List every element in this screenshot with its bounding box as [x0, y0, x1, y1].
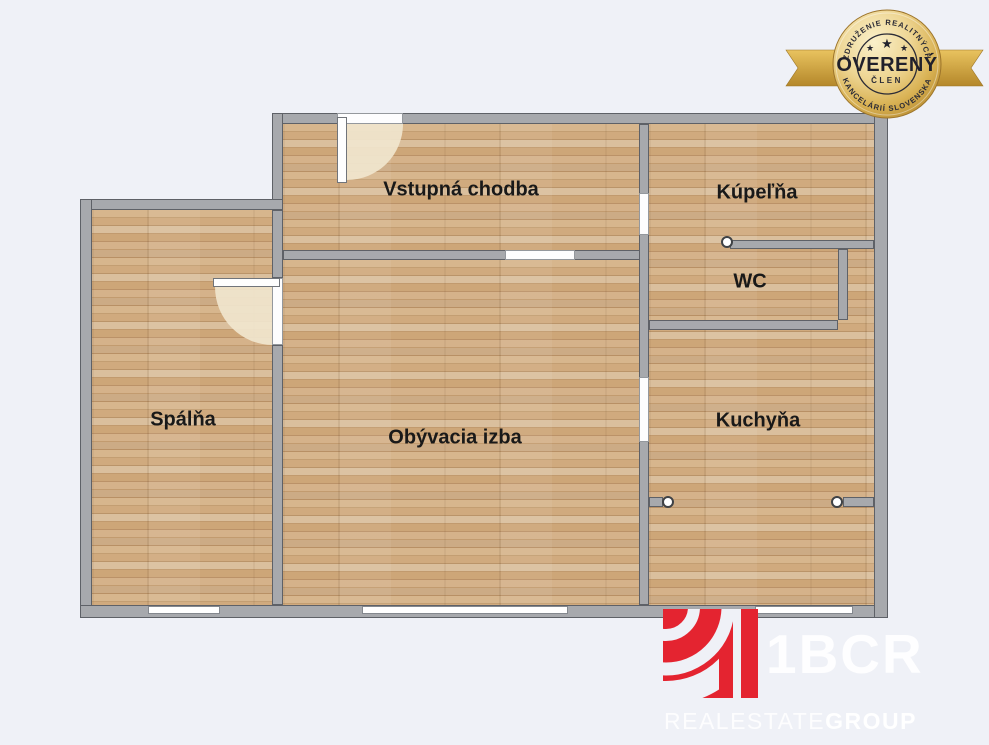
brand-word-estate: ESTATE	[730, 708, 825, 735]
wall-hallway-left	[272, 113, 283, 210]
wall-right	[874, 113, 888, 618]
wall-kitchen-top	[649, 320, 838, 330]
bedroom-door-leaf	[213, 278, 280, 287]
bedroom-door-opening	[272, 278, 283, 345]
wall-bathroom-bottom	[730, 240, 874, 249]
wall-bedroom-top	[80, 199, 283, 210]
room-label-bathroom: Kúpeľňa	[716, 182, 797, 205]
room-label-bedroom: Spálňa	[150, 409, 216, 432]
wall-hallway-bottom	[283, 250, 649, 260]
brand-title: 1BCR	[766, 622, 924, 686]
brand-words: REAL ESTATE GROUP	[664, 708, 914, 735]
kitchen-pivot-left	[662, 496, 674, 508]
floor-plan-page: Spálňa Obývacia izba Vstupná chodba Kúpe…	[0, 0, 989, 745]
kitchen-pivot-right	[831, 496, 843, 508]
room-label-wc: WC	[733, 271, 766, 294]
room-label-living-room: Obývacia izba	[388, 427, 521, 450]
room-label-kitchen: Kuchyňa	[716, 410, 800, 433]
living-kitchen-opening	[639, 377, 649, 442]
hallway-living-threshold	[505, 250, 575, 260]
bedroom-window	[148, 606, 220, 614]
bedroom-floor	[92, 210, 273, 605]
verified-member-badge: ZDRUŽENIE REALITNÝCH KANCELÁRIÍ SLOVENSK…	[778, 4, 989, 128]
brand-word-group: GROUP	[825, 708, 917, 735]
logo-bar-slit	[733, 609, 741, 698]
star-icon: ★	[900, 43, 908, 53]
wall-bedroom-divider-lower	[272, 345, 283, 605]
wall-kitchen-stub-left	[649, 497, 663, 507]
star-icon: ★	[881, 36, 893, 51]
room-label-entrance-hall: Vstupná chodba	[383, 179, 539, 202]
star-icon: ★	[866, 43, 874, 53]
kitchen-window	[755, 606, 853, 614]
brand-logo-mark	[663, 609, 758, 698]
bathroom-door-pivot	[721, 236, 733, 248]
wall-kitchen-stub-right	[843, 497, 874, 507]
brand-word-real: REAL	[664, 708, 730, 735]
entrance-door-leaf	[337, 117, 347, 183]
wall-left	[80, 199, 92, 618]
living-room-window	[362, 606, 568, 614]
wall-wc-right	[838, 249, 848, 320]
badge-subtitle: ČLEN	[871, 76, 903, 85]
hallway-bathroom-opening	[639, 193, 649, 235]
badge-title: OVERENÝ	[836, 52, 937, 76]
wall-bedroom-divider-upper	[272, 210, 283, 278]
